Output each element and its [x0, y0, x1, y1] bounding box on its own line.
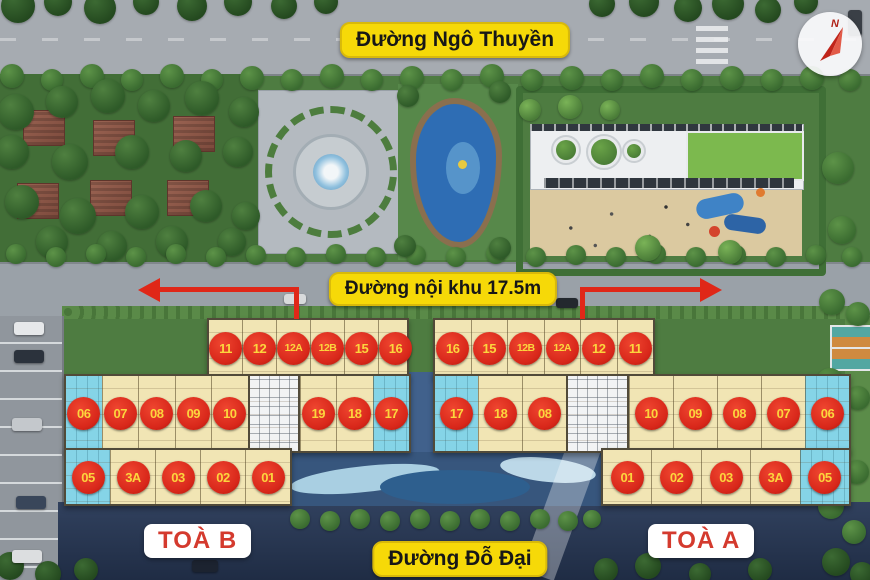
basketball-court: [830, 325, 870, 371]
tower-a-bottom-wing: 0102033A05: [601, 448, 851, 506]
unit-number-badge: 17: [375, 397, 408, 430]
unit-cell: 3A: [110, 450, 155, 504]
unit-cell: 09: [673, 376, 717, 451]
tree: [846, 302, 870, 326]
unit-number-badge: 02: [207, 461, 240, 494]
tree: [766, 247, 786, 267]
tree: [440, 511, 460, 531]
tree: [500, 511, 520, 531]
tree: [286, 247, 306, 267]
street-badge-internal: Đường nội khu 17.5m: [329, 272, 557, 306]
tree: [366, 247, 386, 267]
tree: [281, 69, 303, 91]
tree: [686, 247, 706, 267]
unit-number-badge: 12A: [277, 332, 310, 365]
tree: [46, 247, 66, 267]
tree: [394, 235, 416, 257]
unit-cell: 11: [209, 320, 242, 376]
tower-a-mid-wing: 1718081009080706: [433, 374, 851, 453]
tree: [489, 81, 511, 103]
unit-cell: 11: [617, 320, 654, 376]
tree: [530, 509, 550, 529]
tree: [806, 245, 826, 265]
playground-item: [709, 226, 720, 237]
pool-float: [458, 160, 467, 169]
unit-cell: 18: [478, 376, 522, 451]
tree: [601, 69, 623, 91]
car: [14, 322, 44, 335]
tower-a-top-wing: 161512B12A1211: [433, 318, 655, 378]
tree: [229, 97, 259, 127]
tree: [842, 247, 862, 267]
tree: [822, 548, 850, 576]
tree: [190, 190, 222, 222]
tree: [223, 137, 253, 167]
unit-number-badge: 08: [140, 397, 173, 430]
tower-b-label: TOÀ B: [144, 524, 251, 558]
unit-number-badge: 08: [528, 397, 561, 430]
unit-number-badge: 11: [209, 332, 242, 365]
tree: [138, 90, 170, 122]
unit-number-badge: 06: [67, 397, 100, 430]
tree: [720, 66, 744, 90]
tree: [115, 135, 149, 169]
tree: [397, 85, 419, 107]
arrow-left-stem: [294, 287, 299, 319]
car: [556, 298, 578, 308]
tree: [350, 509, 370, 529]
fountain: [313, 154, 349, 190]
tree: [240, 66, 264, 90]
north-arrow-icon: N: [798, 12, 862, 76]
roof-planter: [551, 135, 581, 165]
planter-tree: [627, 144, 641, 158]
tree: [380, 511, 400, 531]
tree: [160, 64, 184, 88]
unit-cell: 12B: [507, 320, 544, 376]
tree: [410, 509, 430, 529]
unit-cell: 15: [471, 320, 508, 376]
tree: [819, 289, 845, 315]
tree: [121, 69, 143, 91]
unit-number-badge: 18: [338, 397, 371, 430]
arrow-left-bar: [158, 287, 298, 292]
unit-cell: 02: [200, 450, 245, 504]
unit-cell: 16: [435, 320, 471, 376]
unit-cell: 06: [805, 376, 849, 451]
tree: [606, 247, 626, 267]
tree: [125, 195, 159, 229]
roof-planter: [622, 139, 646, 163]
unit-number-badge: 18: [484, 397, 517, 430]
arrow-right-stem: [580, 287, 585, 319]
unit-number-badge: 03: [162, 461, 195, 494]
tree: [446, 247, 466, 267]
unit-cell: 08: [138, 376, 175, 451]
street-badge-top: Đường Ngô Thuyền: [340, 22, 570, 58]
tree: [748, 558, 772, 580]
tree: [718, 240, 742, 264]
tree: [320, 64, 344, 88]
unit-cell: 17: [373, 376, 410, 451]
unit-number-badge: 10: [213, 397, 246, 430]
unit-cell: 08: [717, 376, 761, 451]
tree: [126, 247, 146, 267]
tree: [232, 202, 260, 230]
crosswalk: [696, 26, 728, 64]
unit-number-badge: 05: [72, 461, 105, 494]
court-line: [832, 347, 870, 349]
tree: [74, 558, 98, 580]
tree: [689, 563, 711, 580]
car: [16, 496, 46, 509]
compass-north-label: N: [831, 18, 840, 30]
tree: [6, 244, 26, 264]
unit-number-badge: 12: [243, 332, 276, 365]
car: [14, 350, 44, 363]
unit-number-badge: 03: [710, 461, 743, 494]
unit-number-badge: 3A: [117, 461, 150, 494]
arrow-left-icon: [138, 278, 160, 302]
water-feature: [380, 470, 530, 504]
unit-cell: 09: [175, 376, 212, 451]
arrow-right-icon: [700, 278, 722, 302]
tree: [635, 235, 661, 261]
planter-tree: [556, 140, 576, 160]
clubhouse-roof-edge: [530, 124, 802, 131]
unit-cell: 07: [761, 376, 805, 451]
unit-number-badge: 09: [679, 397, 712, 430]
unit-number-badge: 05: [808, 461, 841, 494]
unit-number-badge: 15: [473, 332, 506, 365]
unit-cell: 10: [211, 376, 248, 451]
planter-tree: [591, 139, 617, 165]
unit-number-badge: 12B: [311, 332, 344, 365]
unit-number-badge: 01: [611, 461, 644, 494]
tree: [558, 511, 578, 531]
swimming-pool: [416, 104, 496, 242]
unit-number-badge: 09: [177, 397, 210, 430]
tree: [326, 244, 346, 264]
tree: [170, 140, 202, 172]
tree: [246, 245, 266, 265]
site-plan: 111212A12B1516 0607080910191817 053A0302…: [0, 0, 870, 580]
car: [12, 550, 42, 563]
playground-item: [756, 188, 765, 197]
tree: [35, 561, 61, 580]
unit-cell: 3A: [750, 450, 799, 504]
tree: [594, 558, 618, 580]
tree: [0, 64, 24, 88]
fountain-plaza: [258, 90, 404, 254]
unit-number-badge: 07: [767, 397, 800, 430]
unit-number-badge: 07: [104, 397, 137, 430]
unit-number-badge: 12A: [546, 332, 579, 365]
arrow-right-bar: [580, 287, 702, 292]
roof-planter: [586, 134, 622, 170]
unit-cell: 08: [522, 376, 566, 451]
unit-cell: 05: [66, 450, 110, 504]
tree: [361, 69, 383, 91]
tree: [640, 64, 664, 88]
tree: [761, 69, 783, 91]
unit-number-badge: 19: [302, 397, 335, 430]
clubhouse-glazing: [544, 178, 794, 188]
unit-cell: 03: [155, 450, 200, 504]
tree: [822, 152, 854, 184]
tree: [681, 69, 703, 91]
tree: [91, 79, 125, 113]
elevator-core: [248, 376, 300, 451]
unit-cell: 02: [651, 450, 700, 504]
tree: [60, 198, 96, 234]
unit-cell: 12A: [544, 320, 581, 376]
tree: [842, 520, 866, 544]
unit-number-badge: 10: [635, 397, 668, 430]
unit-cell: 10: [629, 376, 673, 451]
unit-cell: 16: [378, 320, 412, 376]
tree: [558, 95, 582, 119]
unit-cell: 17: [435, 376, 478, 451]
unit-number-badge: 15: [345, 332, 378, 365]
elevator-core: [566, 376, 628, 451]
unit-cell: 01: [245, 450, 290, 504]
tree: [583, 510, 601, 528]
unit-number-badge: 16: [379, 332, 412, 365]
tower-b-mid-wing: 0607080910191817: [64, 374, 411, 453]
unit-cell: 19: [300, 376, 337, 451]
tree: [566, 245, 586, 265]
street-badge-bottom: Đường Đỗ Đại: [372, 541, 547, 577]
tower-a-label: TOÀ A: [648, 524, 754, 558]
unit-number-badge: 16: [436, 332, 469, 365]
tree: [600, 100, 620, 120]
tree: [470, 509, 490, 529]
unit-number-badge: 3A: [759, 461, 792, 494]
unit-cell: 18: [336, 376, 373, 451]
unit-cell: 03: [701, 450, 750, 504]
tree: [560, 66, 584, 90]
tower-b-top-wing: 111212A12B1516: [207, 318, 409, 378]
compass: N: [798, 12, 862, 76]
unit-number-badge: 12: [582, 332, 615, 365]
car: [192, 560, 218, 572]
tree: [206, 247, 226, 267]
unit-cell: 15: [344, 320, 378, 376]
tree: [521, 69, 543, 91]
unit-cell: 12: [242, 320, 276, 376]
unit-cell: 12A: [276, 320, 310, 376]
tree: [526, 247, 546, 267]
tree: [52, 144, 88, 180]
tree: [166, 244, 186, 264]
unit-cell: 12: [580, 320, 617, 376]
unit-cell: 05: [800, 450, 849, 504]
tree: [46, 86, 78, 118]
tree: [86, 244, 106, 264]
unit-number-badge: 11: [619, 332, 652, 365]
unit-number-badge: 02: [660, 461, 693, 494]
tree: [828, 216, 856, 244]
unit-number-badge: 06: [811, 397, 844, 430]
unit-cell: 06: [66, 376, 102, 451]
tree: [850, 562, 870, 580]
tree: [320, 511, 340, 531]
tree: [441, 69, 463, 91]
tree: [185, 81, 219, 115]
unit-cell: 12B: [310, 320, 344, 376]
unit-number-badge: 08: [723, 397, 756, 430]
unit-cell: 01: [603, 450, 651, 504]
lawn-roof: [686, 131, 804, 181]
unit-number-badge: 01: [252, 461, 285, 494]
tree: [5, 185, 39, 219]
unit-number-badge: 17: [440, 397, 473, 430]
tower-b-bottom-wing: 053A030201: [64, 448, 292, 506]
unit-number-badge: 12B: [509, 332, 542, 365]
unit-cell: 07: [102, 376, 139, 451]
tree: [290, 509, 310, 529]
car: [12, 418, 42, 431]
tree: [489, 237, 511, 259]
tree: [519, 99, 541, 121]
